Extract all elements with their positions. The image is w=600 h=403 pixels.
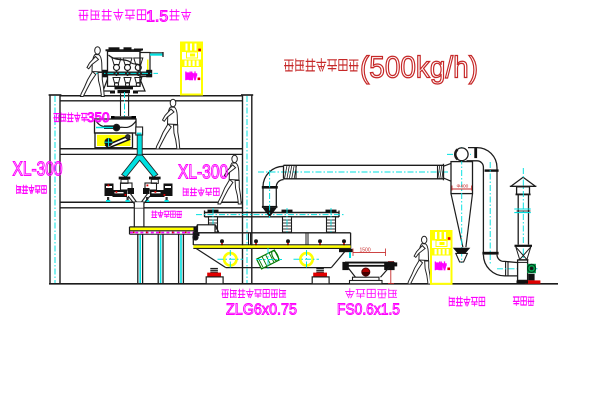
svg-text:1.5: 1.5: [146, 9, 168, 26]
svg-text:XL-300: XL-300: [178, 161, 228, 184]
svg-text:XL-300: XL-300: [13, 158, 63, 181]
svg-text:Φ400: Φ400: [457, 183, 469, 189]
svg-text:350: 350: [87, 110, 110, 125]
svg-text:ZLG6x0.75: ZLG6x0.75: [226, 302, 297, 319]
svg-text:FS0.6x1.5: FS0.6x1.5: [337, 302, 400, 319]
svg-text:(500kg/h): (500kg/h): [360, 50, 478, 85]
